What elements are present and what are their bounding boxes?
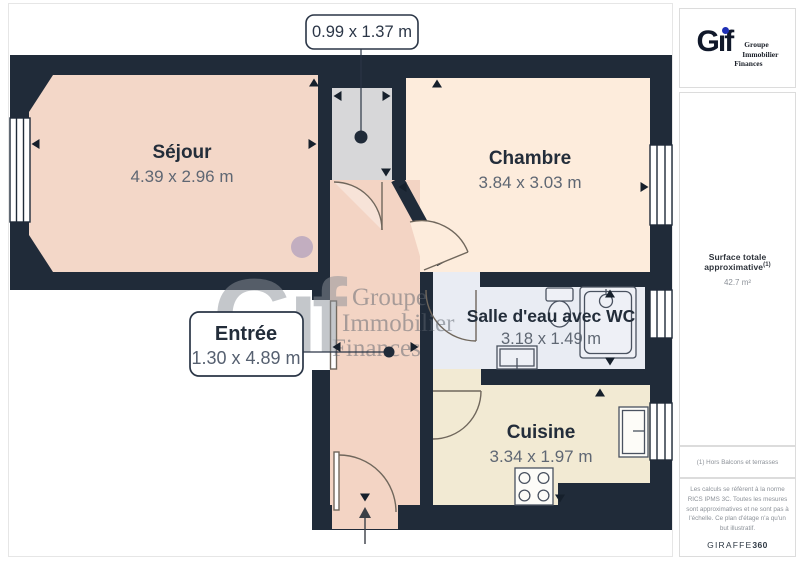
kitchen-sink [619,407,648,457]
cuisine-dims: 3.34 x 1.97 m [489,447,592,466]
surface-value: 42.7 m² [724,278,751,287]
surface-label: Surface totale approximative(1) [680,252,795,272]
footnote: (1) Hors Balcons et terrasses [697,459,779,466]
agency-logo-panel: Gıf Groupe Immobilier Finances [679,8,796,88]
cuisine-label: Cuisine [507,422,576,443]
svg-text:Immobilier: Immobilier [342,310,455,337]
disclaimer-panel: Les calculs se réfèrent à la norme RICS … [679,478,796,557]
bathroom-sink [497,346,537,369]
callout-entree: Entrée 1.30 x 4.89 m [190,312,303,376]
entree-dims: 1.30 x 4.89 m [191,348,300,368]
salle-eau-dims: 3.18 x 1.49 m [501,330,601,348]
footnote-panel: (1) Hors Balcons et terrasses [679,446,796,478]
giraffe360-logo: GIRAFFE360 [707,540,768,550]
sidebar: Gıf Groupe Immobilier Finances Surface t… [676,0,800,566]
watermark-i-dot [291,236,313,258]
sejour-dims: 4.39 x 2.96 m [130,167,233,186]
sejour-label: Séjour [152,142,212,163]
disclaimer: Les calculs se réfèrent à la norme RICS … [685,485,790,534]
chambre-label: Chambre [489,148,571,169]
gif-i-dot-icon [722,27,729,34]
floorplan-canvas: Gıf Groupe Immobilier Finances [0,0,676,566]
entree-label: Entrée [215,323,277,345]
chambre-dims: 3.84 x 3.03 m [478,173,581,192]
window-sejour [10,118,30,222]
callout-niche: 0.99 x 1.37 m [306,15,418,49]
salle-eau-label: Salle d'eau avec WC [467,306,636,326]
svg-text:Finances: Finances [332,335,421,362]
window-cuisine [650,403,672,460]
window-salle-eau [650,290,672,338]
stove [515,468,553,505]
svg-text:Groupe: Groupe [352,284,427,311]
callout-niche-dims: 0.99 x 1.37 m [312,23,412,41]
agency-name: Groupe Immobilier Finances [734,40,778,69]
window-chambre [650,145,672,225]
agency-logo: Gıf Groupe Immobilier Finances [697,27,779,69]
floorplan-page: Gıf Groupe Immobilier Finances [0,0,800,566]
surface-panel: Surface totale approximative(1) 42.7 m² [679,92,796,446]
